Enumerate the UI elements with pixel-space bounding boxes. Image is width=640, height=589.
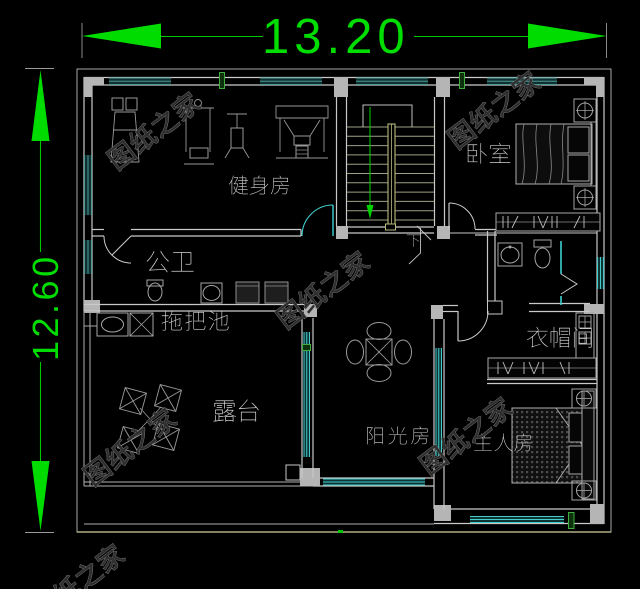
svg-text:12.60: 12.60	[25, 253, 66, 361]
svg-text:13.20: 13.20	[262, 10, 410, 64]
